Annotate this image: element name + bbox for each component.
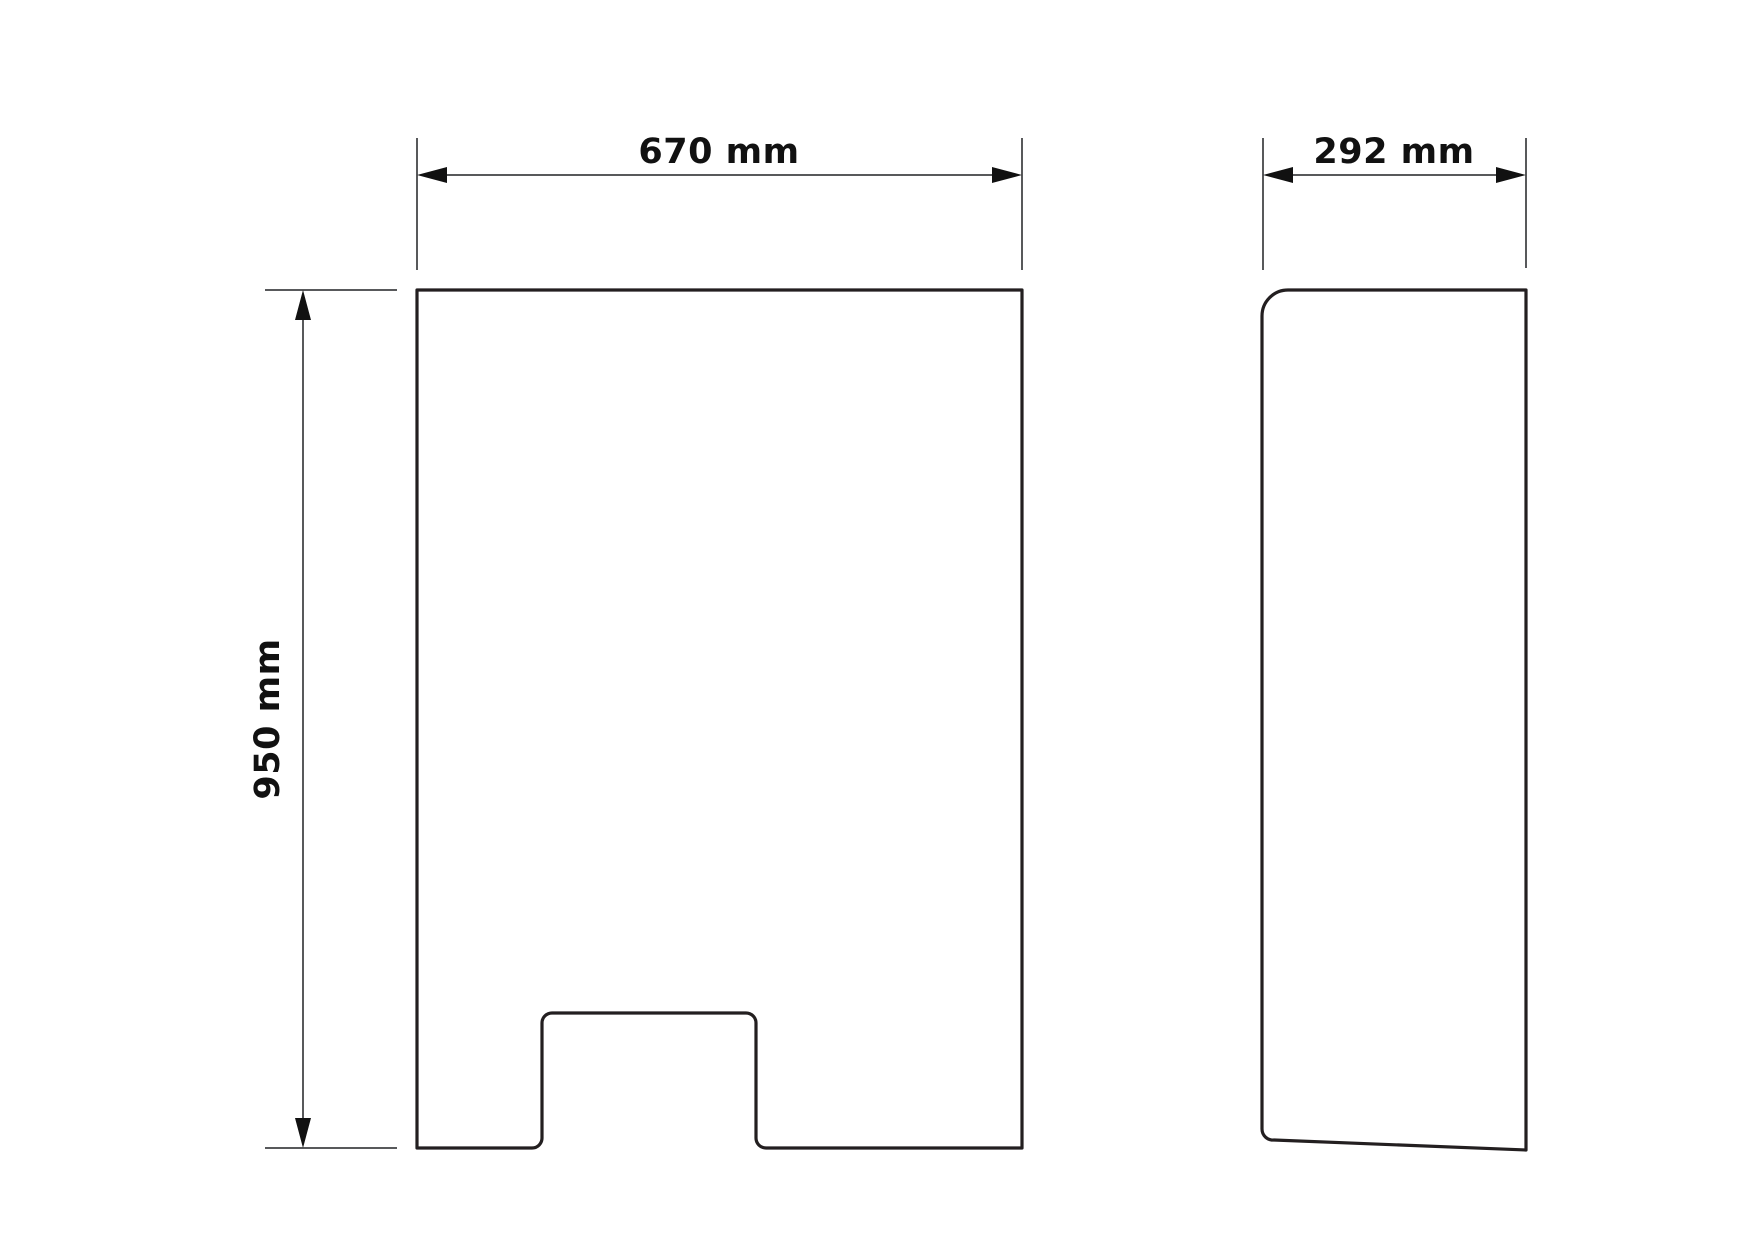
front-view: [417, 290, 1022, 1148]
arrowhead-left-icon: [417, 167, 447, 183]
arrowhead-right-icon: [1496, 167, 1526, 183]
arrowhead-down-icon: [295, 1118, 311, 1148]
side-view: [1262, 290, 1526, 1150]
arrowhead-up-icon: [295, 290, 311, 320]
height-dimension-label: 950 mm: [248, 638, 288, 799]
arrowhead-right-icon: [992, 167, 1022, 183]
side-view-outline: [1262, 290, 1526, 1150]
arrowhead-left-icon: [1263, 167, 1293, 183]
width-dimension: 670 mm: [417, 132, 1022, 270]
width-dimension-label: 670 mm: [638, 132, 799, 172]
technical-drawing: 670 mm 292 mm 950 mm: [0, 0, 1748, 1240]
depth-dimension-label: 292 mm: [1313, 132, 1474, 172]
front-view-outline: [417, 290, 1022, 1148]
height-dimension: 950 mm: [248, 290, 397, 1148]
depth-dimension: 292 mm: [1263, 132, 1526, 270]
